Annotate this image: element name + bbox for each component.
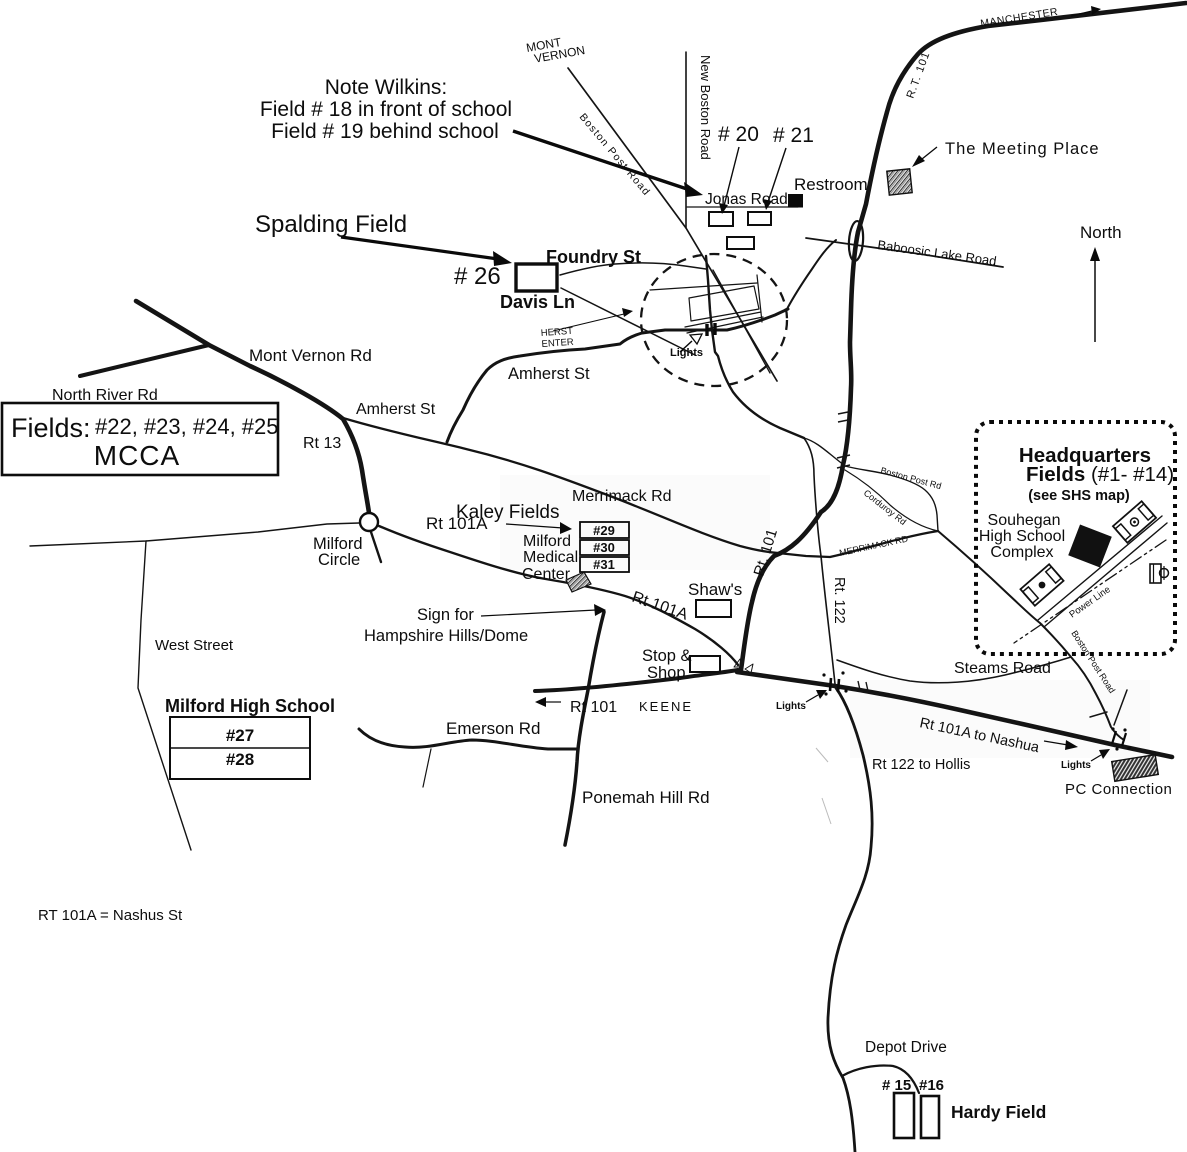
svg-text:West Street: West Street xyxy=(155,637,234,654)
svg-text:Jonas Road: Jonas Road xyxy=(705,191,788,208)
svg-text:Lights: Lights xyxy=(1061,760,1091,771)
svg-text:Kaley Fields: Kaley Fields xyxy=(456,502,560,523)
svg-text:#27: #27 xyxy=(226,726,254,745)
svg-text:New Boston Road: New Boston Road xyxy=(698,55,713,160)
svg-text:Foundry St: Foundry St xyxy=(546,247,641,267)
svg-text:Shop: Shop xyxy=(647,664,686,682)
svg-text:Stop &: Stop & xyxy=(642,647,692,665)
svg-text:#30: #30 xyxy=(593,540,615,555)
svg-text:Restroom: Restroom xyxy=(794,175,868,194)
svg-text:Circle: Circle xyxy=(318,551,360,569)
svg-text:North: North xyxy=(1080,223,1122,242)
svg-text:ENTER: ENTER xyxy=(541,337,574,350)
svg-text:Mont Vernon Rd: Mont Vernon Rd xyxy=(249,346,372,365)
svg-text:MCCA: MCCA xyxy=(94,440,180,471)
svg-text:Emerson Rd: Emerson Rd xyxy=(446,719,540,738)
svg-text:Spalding Field: Spalding Field xyxy=(255,211,407,238)
svg-text:Ponemah Hill Rd: Ponemah Hill Rd xyxy=(582,788,710,807)
svg-text:Steams Road: Steams Road xyxy=(954,660,1051,677)
svg-text:Amherst St: Amherst St xyxy=(508,365,590,383)
svg-text:#28: #28 xyxy=(226,750,254,769)
svg-text:Note Wilkins:: Note Wilkins: xyxy=(325,76,448,99)
svg-text:Lights: Lights xyxy=(670,347,703,359)
svg-text:KEENE: KEENE xyxy=(639,699,693,714)
svg-text:PC Connection: PC Connection xyxy=(1065,781,1172,798)
svg-text:RT 101A = Nashus St: RT 101A = Nashus St xyxy=(38,907,183,924)
svg-text:Milford High School: Milford High School xyxy=(165,696,335,716)
svg-text:Lights: Lights xyxy=(776,701,806,712)
svg-text:Fields:: Fields: xyxy=(11,413,91,443)
svg-text:# 20: # 20 xyxy=(718,123,759,146)
svg-text:Amherst St: Amherst St xyxy=(356,401,436,418)
svg-text:The Meeting Place: The Meeting Place xyxy=(945,140,1100,158)
svg-text:#29: #29 xyxy=(593,523,615,538)
svg-text:# 15: # 15 xyxy=(882,1077,911,1094)
svg-text:High School: High School xyxy=(979,528,1065,545)
svg-text:Hampshire Hills/Dome: Hampshire Hills/Dome xyxy=(364,627,528,645)
svg-text:# 26: # 26 xyxy=(454,263,501,290)
svg-text:Depot Drive: Depot Drive xyxy=(865,1039,947,1056)
svg-text:Davis Ln: Davis Ln xyxy=(500,292,575,312)
svg-text:Shaw's: Shaw's xyxy=(688,580,742,599)
svg-text:Souhegan: Souhegan xyxy=(988,512,1061,529)
svg-text:(see SHS map): (see SHS map) xyxy=(1028,488,1130,504)
svg-text:Milford: Milford xyxy=(523,533,571,550)
svg-text:Field # 19 behind school: Field # 19 behind school xyxy=(271,120,499,143)
svg-text:Rt 122 to Hollis: Rt 122 to Hollis xyxy=(872,757,970,773)
svg-text:Field # 18 in front of school: Field # 18 in front of school xyxy=(260,98,512,121)
svg-text:Medical: Medical xyxy=(523,549,578,566)
svg-text:Fields (#1- #14): Fields (#1- #14) xyxy=(1026,463,1174,486)
svg-text:#22, #23, #24, #25: #22, #23, #24, #25 xyxy=(95,414,279,439)
svg-text:#16: #16 xyxy=(919,1077,944,1094)
svg-text:Merrimack Rd: Merrimack Rd xyxy=(572,488,672,505)
svg-text:North River Rd: North River Rd xyxy=(52,387,158,404)
svg-text:#31: #31 xyxy=(593,557,615,572)
svg-text:Sign for: Sign for xyxy=(417,606,474,624)
svg-text:Complex: Complex xyxy=(990,544,1053,561)
svg-text:Rt 13: Rt 13 xyxy=(303,435,341,452)
svg-text:Center: Center xyxy=(522,566,571,583)
svg-text:Hardy Field: Hardy Field xyxy=(951,1102,1046,1122)
svg-text:Rt. 122: Rt. 122 xyxy=(831,577,847,624)
svg-text:Rt 101: Rt 101 xyxy=(570,699,617,716)
svg-text:# 21: # 21 xyxy=(773,124,814,147)
